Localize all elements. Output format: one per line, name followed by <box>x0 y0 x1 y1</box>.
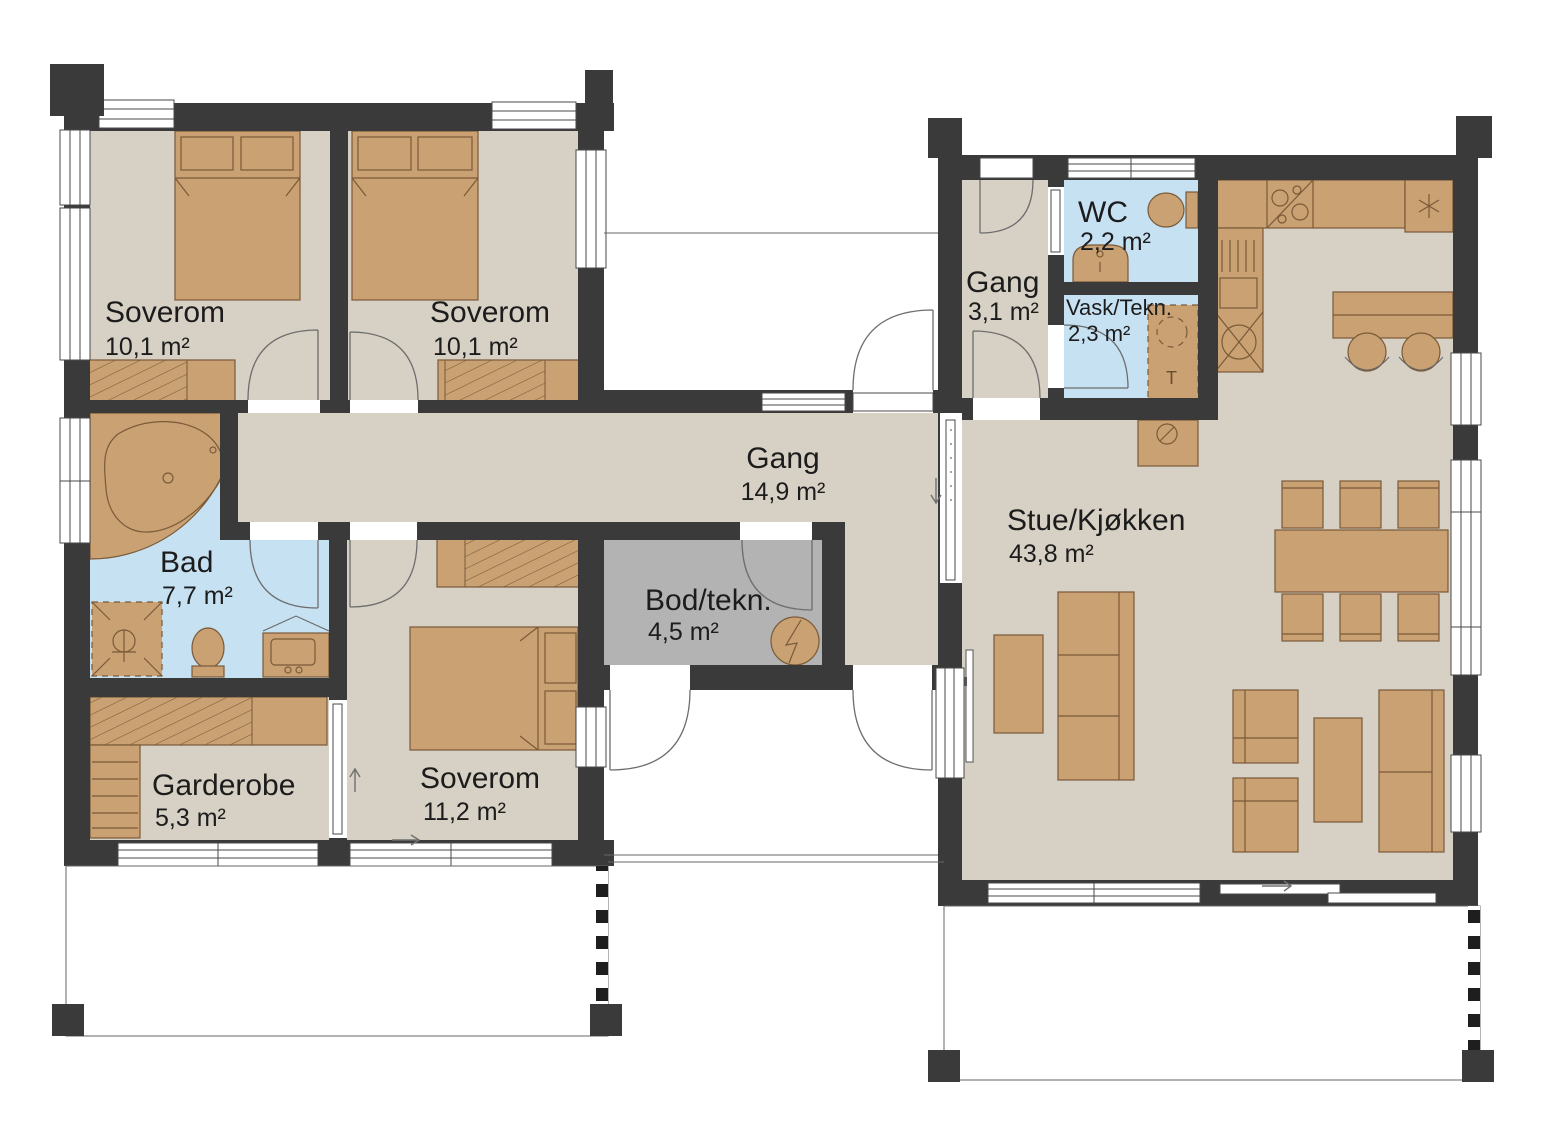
wall-bedroom-divider <box>330 103 348 413</box>
wall-segment <box>238 522 250 540</box>
pillow <box>418 137 472 170</box>
corner-post <box>928 118 962 158</box>
corner-post <box>585 70 613 113</box>
label-garderobe: Garderobe <box>152 769 295 802</box>
label-bad: Bad <box>160 546 213 579</box>
floor-plan-drawing: T <box>0 0 1548 1144</box>
exterior-door-link <box>853 310 933 411</box>
tv <box>966 650 973 762</box>
toilet-bowl <box>192 628 224 668</box>
water-heater <box>771 617 819 665</box>
armchair <box>1233 690 1298 763</box>
window <box>350 843 552 866</box>
tv-bench <box>994 635 1043 733</box>
double-bed-1 <box>175 131 300 300</box>
area-bod: 4,5 m² <box>648 618 719 646</box>
sofa-2-seat <box>1379 690 1444 852</box>
window <box>118 843 318 866</box>
window <box>762 393 845 411</box>
corner-post <box>1456 116 1492 158</box>
label-soverom-2: Soverom <box>430 296 550 329</box>
sliding-door-garderobe-soverom3 <box>329 700 347 838</box>
corner-post <box>50 64 104 116</box>
wall-gangrow-south <box>1040 398 1218 420</box>
heater-tank <box>771 617 819 665</box>
terrace-post <box>590 1004 622 1036</box>
terrace-right <box>944 906 1480 1080</box>
wall-segment <box>320 400 350 413</box>
label-soverom-3: Soverom <box>420 762 540 795</box>
toilet-tank <box>1186 192 1198 228</box>
wall-bad-corridor <box>220 413 238 540</box>
dining-set <box>1275 481 1448 641</box>
coffee-table <box>1314 718 1362 822</box>
dryer-letter: T <box>1166 368 1177 388</box>
wall-segment <box>64 400 248 413</box>
armchair <box>1233 778 1298 852</box>
sliding-door-corridor-stue <box>940 413 962 583</box>
terrace-post <box>52 1004 84 1036</box>
terrace-stair-strip <box>596 866 608 1004</box>
fireplace-body <box>1138 420 1198 466</box>
area-gang-entry: 3,1 m² <box>968 298 1039 326</box>
pillow <box>545 633 576 683</box>
terrace-post <box>928 1050 960 1082</box>
label-gang-hall: Gang <box>746 442 819 475</box>
area-soverom-2: 10,1 m² <box>433 333 518 361</box>
pillow <box>545 691 576 744</box>
window <box>576 150 606 268</box>
area-bad: 7,7 m² <box>162 582 233 610</box>
toilet-bowl <box>1148 193 1184 227</box>
area-vask: 2,3 m² <box>1068 321 1130 346</box>
wardrobe-hatch <box>445 360 545 402</box>
fireplace <box>1138 420 1198 466</box>
toilet-tank <box>192 666 224 677</box>
window <box>1451 353 1481 425</box>
wall-segment <box>417 522 580 540</box>
wardrobe-hatch <box>90 697 252 745</box>
label-gang-entry: Gang <box>966 266 1039 299</box>
window <box>60 130 90 205</box>
area-soverom-1: 10,1 m² <box>105 333 190 361</box>
pillow <box>181 137 233 170</box>
dining-table <box>1275 530 1448 592</box>
wardrobe-hatch <box>88 360 187 402</box>
shelf-cabinet <box>90 745 140 838</box>
window <box>576 707 606 767</box>
wall-segment <box>418 400 580 413</box>
wall-bod-north-segment <box>812 522 845 540</box>
label-wc: WC <box>1078 196 1128 229</box>
label-vask: Vask/Tekn. <box>1066 295 1172 320</box>
porch-door-bod <box>610 665 690 770</box>
area-wc: 2,2 m² <box>1080 228 1151 256</box>
window <box>1451 755 1481 832</box>
area-garderobe: 5,3 m² <box>155 804 226 832</box>
window <box>1451 460 1481 675</box>
wall-bad-south <box>64 678 340 697</box>
pillow <box>358 137 411 170</box>
wall-wc-vask <box>1048 282 1198 295</box>
label-stue: Stue/Kjøkken <box>1007 504 1185 537</box>
window <box>936 668 964 778</box>
window <box>99 100 174 128</box>
area-gang-hall: 14,9 m² <box>741 478 826 506</box>
wall-bod-east <box>822 540 845 665</box>
terrace-left <box>66 866 608 1036</box>
sofa-3-seat <box>1058 592 1134 780</box>
wardrobe-hatch <box>465 535 580 587</box>
floor-plan-page: T <box>0 0 1548 1144</box>
window <box>988 883 1200 903</box>
terrace-stair-strip <box>1468 906 1480 1050</box>
porch-door-gang <box>853 665 932 770</box>
double-bed-2 <box>352 131 478 300</box>
label-soverom-1: Soverom <box>105 296 225 329</box>
wall-segment <box>690 665 853 690</box>
area-stue: 43,8 m² <box>1009 540 1094 568</box>
wardrobe-soverom-1 <box>88 360 235 402</box>
terrace-post <box>1462 1050 1494 1082</box>
wall-segment <box>580 665 610 690</box>
pillow <box>241 137 293 170</box>
wardrobe-soverom-2 <box>438 360 580 402</box>
window <box>60 208 90 360</box>
window <box>1068 158 1195 178</box>
wall-soverom3-east <box>578 522 604 866</box>
door-wc <box>1048 187 1064 255</box>
wall-wc-kitchen <box>1198 155 1218 420</box>
area-soverom-3: 11,2 m² <box>423 798 506 826</box>
window <box>492 102 576 129</box>
wall-bod-north-segment <box>580 522 740 540</box>
window <box>60 418 90 543</box>
label-bod: Bod/tekn. <box>645 584 772 617</box>
